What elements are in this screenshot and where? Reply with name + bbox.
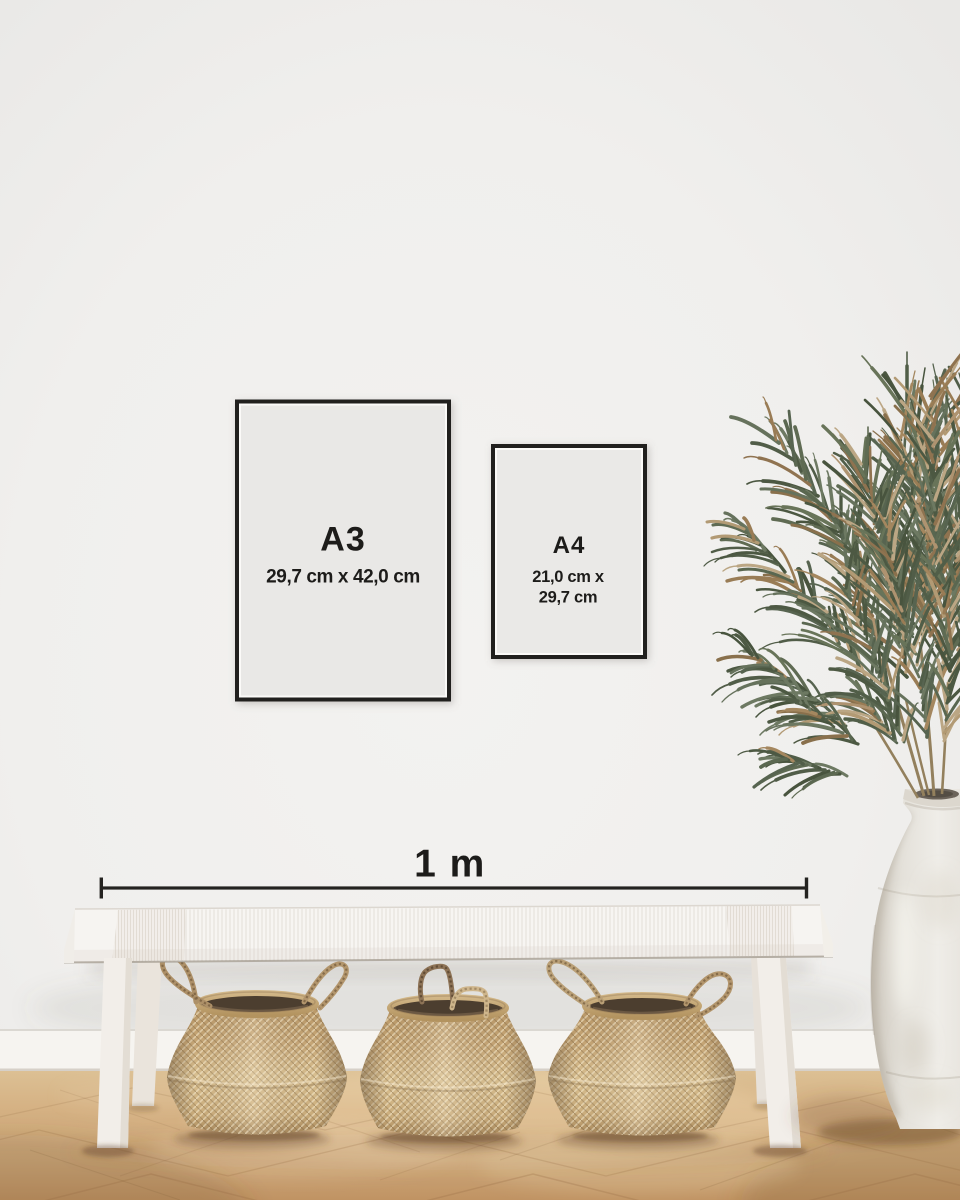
svg-text:29,7 cm: 29,7 cm xyxy=(539,589,597,607)
svg-text:29,7 cm x 42,0 cm: 29,7 cm x 42,0 cm xyxy=(266,567,420,588)
svg-text:A4: A4 xyxy=(553,532,586,559)
svg-text:21,0 cm x: 21,0 cm x xyxy=(532,568,605,586)
svg-text:A3: A3 xyxy=(320,521,365,559)
svg-text:1 m: 1 m xyxy=(414,843,486,886)
